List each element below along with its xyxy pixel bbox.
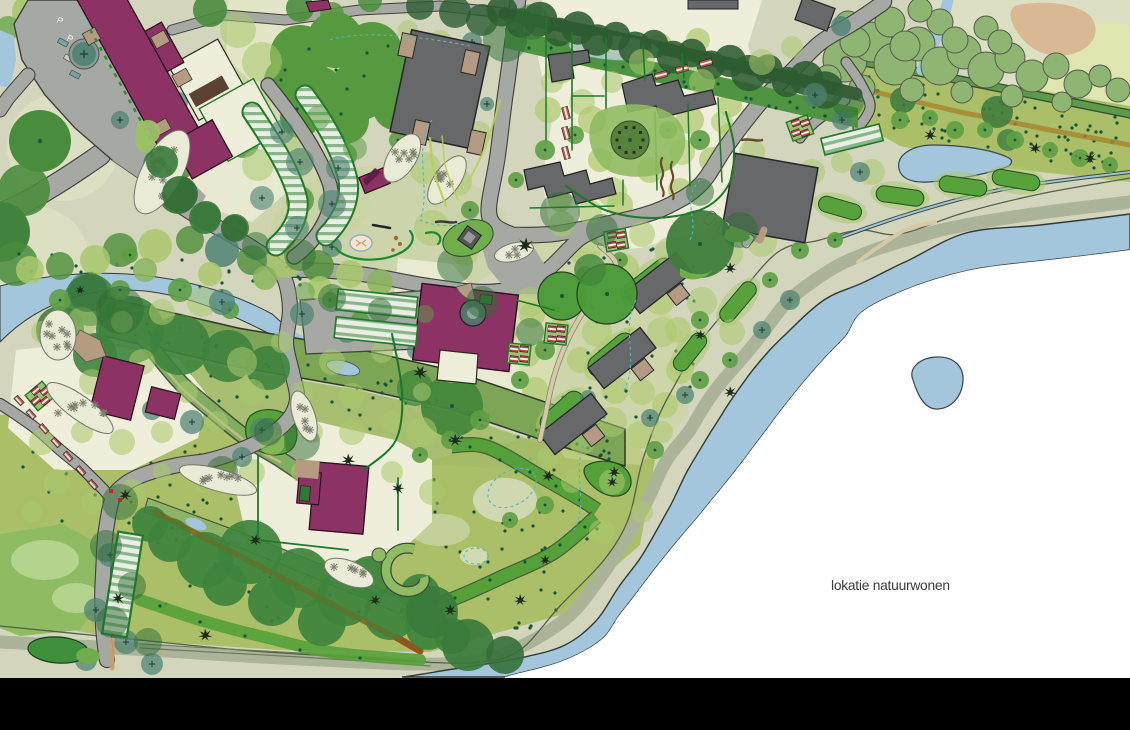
svg-text:lokatie natuurwonen: lokatie natuurwonen (831, 578, 950, 593)
